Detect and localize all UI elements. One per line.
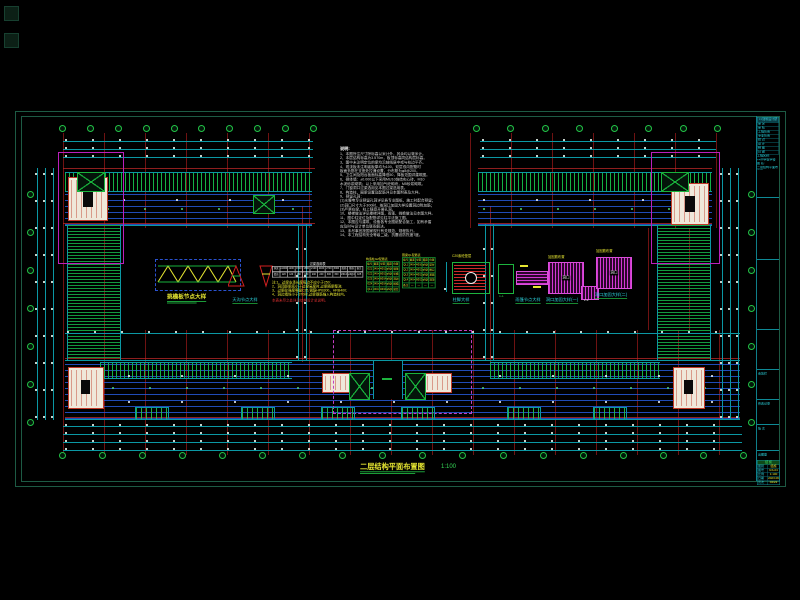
schedule-header-cell: 备注 bbox=[355, 266, 363, 271]
axis-bubble bbox=[254, 125, 261, 132]
axis-bubble bbox=[59, 125, 66, 132]
magenta-dashed-center bbox=[333, 330, 472, 414]
titleblock-table: 结 施 图别结施图号GS-04比例1:100日期2023.06页次04/22 bbox=[757, 460, 779, 510]
axis-bubble bbox=[580, 452, 587, 459]
box-label-1: 会签栏 bbox=[758, 371, 767, 376]
axis-bubble bbox=[179, 452, 186, 459]
dim-line bbox=[63, 149, 313, 150]
axis-bubble bbox=[219, 452, 226, 459]
dim-line bbox=[63, 434, 742, 435]
gutter-detail-drawing bbox=[228, 262, 274, 290]
titleblock-row: 图号GS-04 bbox=[758, 469, 780, 473]
axis-bubble-row-top-left bbox=[59, 125, 317, 132]
ql-cell: — bbox=[429, 283, 436, 288]
dim-line bbox=[493, 224, 494, 360]
axis-bubble bbox=[576, 125, 583, 132]
schedule-header-cell: 1200 bbox=[287, 266, 295, 271]
schedule-cell: 120 bbox=[287, 272, 295, 277]
dim-line bbox=[63, 426, 742, 427]
box-label-4: 出图章 bbox=[758, 452, 767, 457]
schedule-cell: 300 bbox=[325, 272, 333, 277]
axis-bubble bbox=[542, 125, 549, 132]
entry-steps bbox=[135, 407, 169, 420]
axis-bubble bbox=[500, 452, 507, 459]
dim-line bbox=[730, 168, 731, 420]
axis-bubble-col-right bbox=[748, 191, 755, 426]
dim-line bbox=[63, 450, 742, 451]
opening2-core: 洞口 bbox=[610, 271, 618, 276]
axis-bubble bbox=[459, 452, 466, 459]
gz-grid: 编号截面纵筋箍筋位置GZ1240×2404Φ12φ6@200墙角GZ2240×3… bbox=[366, 261, 400, 292]
axis-bubble bbox=[620, 452, 627, 459]
titleblock-section-divider bbox=[757, 369, 779, 370]
titleblock-row: 比例1:100 bbox=[758, 473, 780, 477]
note-line: 14、本工程结构安全等级二级，抗震设防烈度7度。 bbox=[340, 233, 460, 237]
dim-line bbox=[45, 168, 46, 420]
axis-bubble-row-top-right bbox=[473, 125, 721, 132]
schedule-cell: 300 bbox=[333, 272, 341, 277]
canopy-label: 雨篷节点大样 bbox=[515, 296, 540, 304]
titleblock-row: 日期2023.06 bbox=[758, 477, 780, 481]
project-info: 工程名称:××中学教学楼图 名:二层结构平面布置图 bbox=[757, 155, 779, 170]
axis-bubble-col-left bbox=[27, 191, 34, 426]
axis-bubble bbox=[27, 305, 34, 312]
schedule-header-cell: 2100 bbox=[310, 266, 318, 271]
detail-eave-label: 挑檐板节点大样 bbox=[167, 293, 206, 302]
entry-steps bbox=[593, 407, 627, 420]
axis-bubble bbox=[282, 125, 289, 132]
schedule-cell: 120 bbox=[280, 272, 288, 277]
axis-bubble bbox=[748, 381, 755, 388]
schedule-cell: 梁高 bbox=[272, 272, 280, 277]
axis-bubble bbox=[226, 125, 233, 132]
axis-bubble bbox=[700, 452, 707, 459]
axis-bubble bbox=[27, 191, 34, 198]
schedule-header-cell: 箍筋 bbox=[348, 266, 356, 271]
axis-bubble bbox=[748, 343, 755, 350]
lintel-schedule: 过梁选用表 洞宽≤1000120015001800210024002700300… bbox=[272, 262, 363, 278]
axis-bubble bbox=[748, 305, 755, 312]
schedule-cell: 2Φ14 bbox=[340, 272, 348, 277]
schedule-header-cell: 洞宽 bbox=[272, 266, 280, 271]
schedule-header-cell: 1800 bbox=[303, 266, 311, 271]
notes-lines: 1、本图所注尺寸除标高以米计外，其余均以毫米计。2、本层结构标高为3.570m，… bbox=[340, 152, 460, 237]
opening1-title: 加固筋布置 bbox=[548, 254, 565, 259]
stair-room-bottom-right bbox=[673, 367, 705, 409]
axis-bubble bbox=[139, 452, 146, 459]
schedule-notes: 注:1、过梁支承长度每边不应小于250;2、洞顶距梁底小于过梁高度时,过梁随梁整… bbox=[272, 281, 347, 297]
schedule-header-cell: 2700 bbox=[325, 266, 333, 271]
axis-bubble bbox=[740, 452, 747, 459]
axis-bubble bbox=[27, 343, 34, 350]
schedule-cell: 240 bbox=[310, 272, 318, 277]
entry-steps bbox=[507, 407, 541, 420]
entry-steps bbox=[401, 407, 435, 420]
axis-bubble bbox=[748, 229, 755, 236]
axis-bubble bbox=[27, 267, 34, 274]
titleblock-section-divider bbox=[757, 424, 779, 425]
titleblock-section-divider bbox=[757, 329, 779, 330]
schedule-header-cell: 配筋 bbox=[340, 266, 348, 271]
box-label-2: 修改记录 bbox=[758, 401, 770, 406]
dim-line bbox=[480, 141, 716, 142]
axis-bubble bbox=[473, 125, 480, 132]
colbase-detail bbox=[452, 262, 490, 294]
axis-bubble bbox=[299, 452, 306, 459]
opening1-detail: 洞口 bbox=[548, 262, 584, 294]
axis-bubble bbox=[714, 125, 721, 132]
schedule-data-row: 梁高1201201801802402403003002Φ14φ6@200C25 bbox=[272, 272, 363, 278]
box-label-3: 版 次 bbox=[758, 426, 765, 431]
colbase-label: 柱脚大样 bbox=[453, 296, 470, 304]
title-block-top: ××建筑设计研究院 审 定审 核工程负责专业负责校 对设 计制 图日 期 工程名… bbox=[757, 117, 779, 170]
dim-line bbox=[722, 168, 723, 420]
magenta-outline-right bbox=[651, 152, 720, 264]
dim-line bbox=[37, 168, 38, 420]
eave-truss-drawing bbox=[156, 260, 238, 288]
axis-bubble bbox=[611, 125, 618, 132]
schedule-cell: C25 bbox=[355, 272, 363, 277]
axis-bubble-row-bottom bbox=[59, 452, 747, 459]
entry-steps bbox=[241, 407, 275, 420]
general-notes: 说明: 1、本图所注尺寸除标高以米计外，其余均以毫米计。2、本层结构标高为3.5… bbox=[340, 147, 460, 238]
info-line: 二层结构平面布置图 bbox=[757, 166, 779, 170]
section-tag-label: 2-2 bbox=[584, 299, 589, 302]
schedule-cell: 240 bbox=[318, 272, 326, 277]
leader-mark bbox=[520, 265, 528, 267]
titleblock-table-rows: 图别结施图号GS-04比例1:100日期2023.06页次04/22 bbox=[758, 465, 780, 485]
axis-bubble bbox=[748, 267, 755, 274]
schedule-warning: 本表未尽之处详见结构设计总说明。 bbox=[272, 299, 328, 303]
signature-rows: 审 定审 核工程负责专业负责校 对设 计制 图日 期 bbox=[757, 123, 779, 155]
colbase-column-circle bbox=[465, 272, 477, 284]
dim-line bbox=[446, 262, 447, 292]
file-icon-2[interactable] bbox=[4, 33, 19, 48]
axis-bubble bbox=[171, 125, 178, 132]
axis-bubble bbox=[680, 125, 687, 132]
title-block: ××建筑设计研究院 审 定审 核工程负责专业负责校 对设 计制 图日 期 工程名… bbox=[757, 117, 779, 480]
axis-bubble bbox=[339, 452, 346, 459]
cad-viewport: 说明: 1、本图所注尺寸除标高以米计外，其余均以毫米计。2、本层结构标高为3.5… bbox=[0, 0, 800, 600]
axis-bubble bbox=[27, 419, 34, 426]
colbase-note: C20素砼垫层 bbox=[452, 253, 471, 258]
drawing-title: 二层结构平面布置图 bbox=[360, 461, 425, 472]
schedule-header-cell: 2400 bbox=[318, 266, 326, 271]
schedule-note-line: 4、洞边墙垛小于370时,过梁钢筋锚入构造柱内。 bbox=[272, 293, 347, 297]
schedule-cell: 180 bbox=[303, 272, 311, 277]
gz-cell: 窗台 bbox=[393, 287, 400, 292]
entry-steps bbox=[321, 407, 355, 420]
opening2-label: 洞口加固大样(二) bbox=[595, 291, 627, 299]
axis-bubble bbox=[645, 125, 652, 132]
detail-gutter-label: 天沟节点大样 bbox=[232, 296, 257, 304]
ql-table: 圈梁QL配筋表 编号截面纵筋箍筋位置QL1240×1804Φ10φ6@200窗台… bbox=[402, 253, 436, 288]
titleblock-row: 图别结施 bbox=[758, 465, 780, 469]
axis-bubble bbox=[87, 125, 94, 132]
dim-line bbox=[480, 149, 716, 150]
opening1-core: 洞口 bbox=[562, 276, 570, 281]
opening2-detail: 洞口 bbox=[596, 257, 632, 289]
canopy-detail bbox=[516, 271, 548, 285]
axis-bubble bbox=[540, 452, 547, 459]
dim-line bbox=[738, 168, 739, 420]
titleblock-row: 页次04/22 bbox=[758, 481, 780, 485]
schedule-header-cell: 3000 bbox=[333, 266, 341, 271]
gz-table: 构造柱GZ配筋表 编号截面纵筋箍筋位置GZ1240×2404Φ12φ6@200墙… bbox=[366, 257, 400, 292]
dim-line bbox=[63, 141, 313, 142]
section-detail bbox=[498, 264, 514, 294]
axis-bubble bbox=[27, 229, 34, 236]
axis-bubble bbox=[748, 419, 755, 426]
axis-bubble bbox=[198, 125, 205, 132]
axis-bubble bbox=[143, 125, 150, 132]
axis-bubble bbox=[59, 452, 66, 459]
axis-bubble bbox=[660, 452, 667, 459]
magenta-outline-left bbox=[58, 152, 124, 264]
titleblock-section-divider bbox=[757, 259, 779, 260]
axis-bubble bbox=[507, 125, 514, 132]
axis-bubble bbox=[310, 125, 317, 132]
axis-bubble bbox=[115, 125, 122, 132]
drawing-sheet: 说明: 1、本图所注尺寸除标高以米计外，其余均以毫米计。2、本层结构标高为3.5… bbox=[15, 111, 786, 487]
drawing-scale: 1:100 bbox=[441, 464, 456, 470]
dim-line bbox=[63, 442, 742, 443]
titleblock-section-divider bbox=[757, 197, 779, 198]
schedule-cell: 180 bbox=[295, 272, 303, 277]
axis-bubble bbox=[748, 191, 755, 198]
titleblock-section-divider bbox=[757, 450, 779, 451]
titleblock-section-divider bbox=[757, 399, 779, 400]
axis-bubble bbox=[259, 452, 266, 459]
axis-bubble bbox=[379, 452, 386, 459]
dim-line bbox=[53, 168, 54, 420]
notes-title: 说明: bbox=[340, 147, 460, 151]
schedule-header-cell: 1500 bbox=[295, 266, 303, 271]
ql-grid: 编号截面纵筋箍筋位置QL1240×1804Φ10φ6@200窗台QL2240×2… bbox=[402, 257, 436, 288]
axis-bubble bbox=[419, 452, 426, 459]
schedule-header-cell: ≤1000 bbox=[280, 266, 288, 271]
axis-bubble bbox=[27, 381, 34, 388]
leader-mark bbox=[533, 286, 541, 288]
file-icon-1[interactable] bbox=[4, 6, 19, 21]
stair-room-bottom-left bbox=[68, 367, 104, 409]
opening2-title: 加固筋布置 bbox=[596, 248, 613, 253]
schedule-cell: φ6@200 bbox=[348, 272, 356, 277]
opening1-label: 洞口加固大样(一) bbox=[546, 296, 578, 304]
stair-x-symbol bbox=[253, 195, 275, 214]
axis-bubble bbox=[99, 452, 106, 459]
section-label: 1-1 bbox=[499, 295, 504, 298]
